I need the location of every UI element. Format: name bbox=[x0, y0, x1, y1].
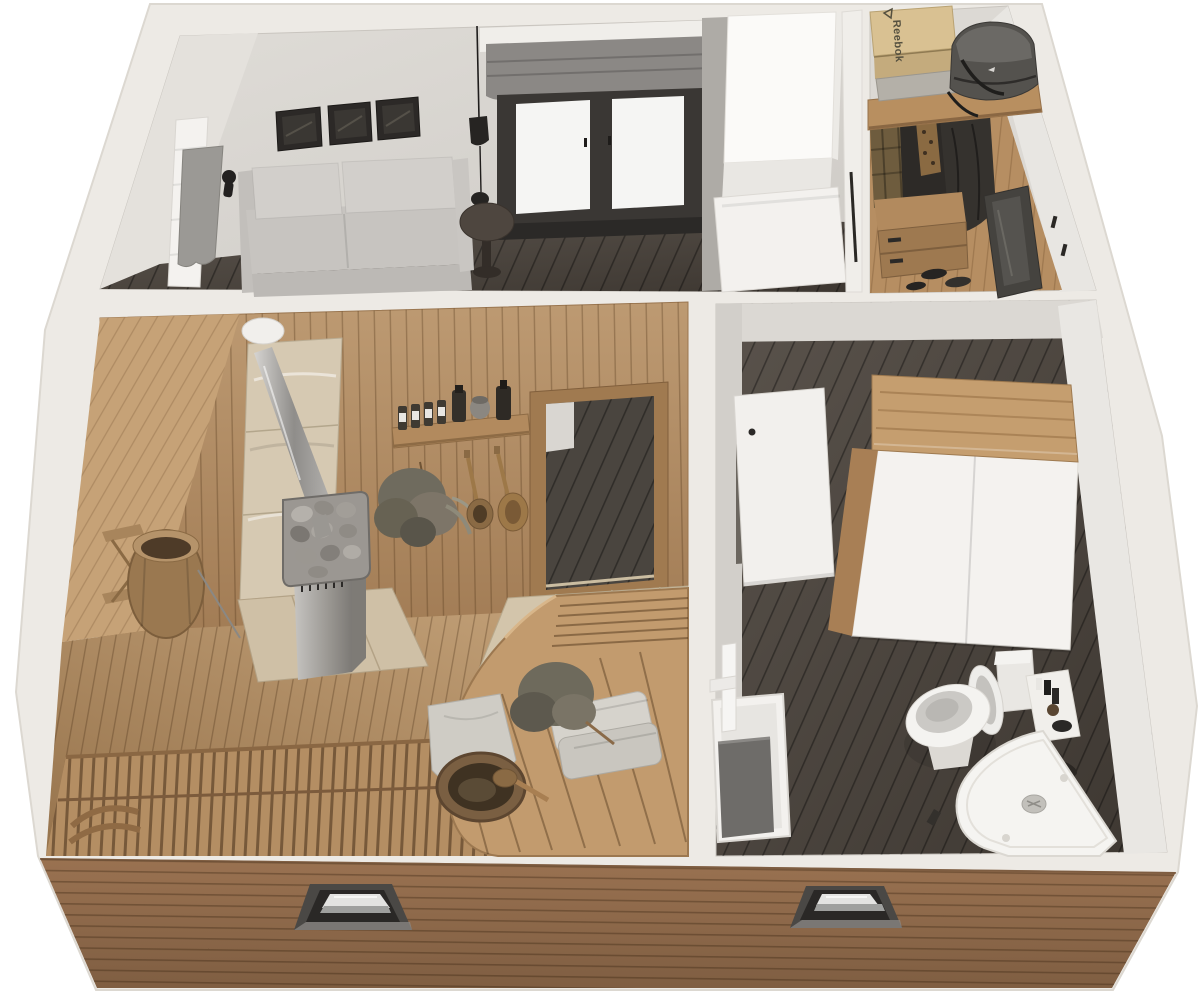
door-handle-icon bbox=[749, 429, 756, 436]
leaning-door-panel bbox=[714, 187, 846, 292]
toiletry-bottle-icon bbox=[1036, 678, 1042, 690]
hallway bbox=[702, 10, 862, 292]
chimney-cap bbox=[242, 318, 284, 344]
tall-cabinet bbox=[722, 12, 843, 201]
facade-siding bbox=[40, 858, 1176, 988]
sauna-door bbox=[530, 382, 668, 610]
hall-wall-through-door bbox=[546, 402, 574, 452]
tall-cabinet-top bbox=[724, 12, 836, 163]
reebok-shoebox: Reebok bbox=[870, 6, 957, 79]
sofa-back-cushion-left bbox=[252, 163, 342, 219]
window-pane-right bbox=[612, 96, 684, 209]
picture-frame-3 bbox=[376, 97, 420, 140]
facade-window-right bbox=[790, 886, 902, 928]
window-handle-icon-2 bbox=[608, 136, 611, 145]
toiletry-bowl-icon bbox=[1052, 720, 1072, 732]
hook-icon bbox=[464, 450, 470, 458]
window bbox=[480, 20, 717, 240]
floorplan-render: Reebok bbox=[0, 0, 1200, 992]
cabinet-front bbox=[852, 450, 1078, 650]
toiletry-jar-icon bbox=[1047, 704, 1059, 716]
sofa bbox=[238, 157, 474, 297]
picture-frame-2 bbox=[328, 102, 372, 145]
hook-icon-2 bbox=[494, 446, 500, 454]
bathroom-door-panel bbox=[734, 388, 834, 586]
bathroom-door bbox=[734, 388, 834, 586]
toiletry-pump-icon bbox=[1052, 688, 1059, 704]
cabinet-top-wood bbox=[872, 375, 1078, 462]
window-handle-icon bbox=[584, 138, 587, 147]
laundry-insert bbox=[718, 737, 774, 838]
facade-window-left bbox=[294, 884, 412, 930]
sauna bbox=[46, 302, 688, 856]
dresser bbox=[874, 192, 968, 278]
sofa-back-cushion-right bbox=[342, 157, 456, 213]
picture-frame-1 bbox=[276, 107, 322, 151]
bathroom bbox=[710, 300, 1167, 856]
bathroom-back-wall bbox=[716, 300, 1103, 342]
window-pane-left bbox=[516, 100, 590, 214]
closet-door bbox=[842, 10, 862, 292]
toiletry-bottle-icon-2 bbox=[1044, 680, 1051, 695]
